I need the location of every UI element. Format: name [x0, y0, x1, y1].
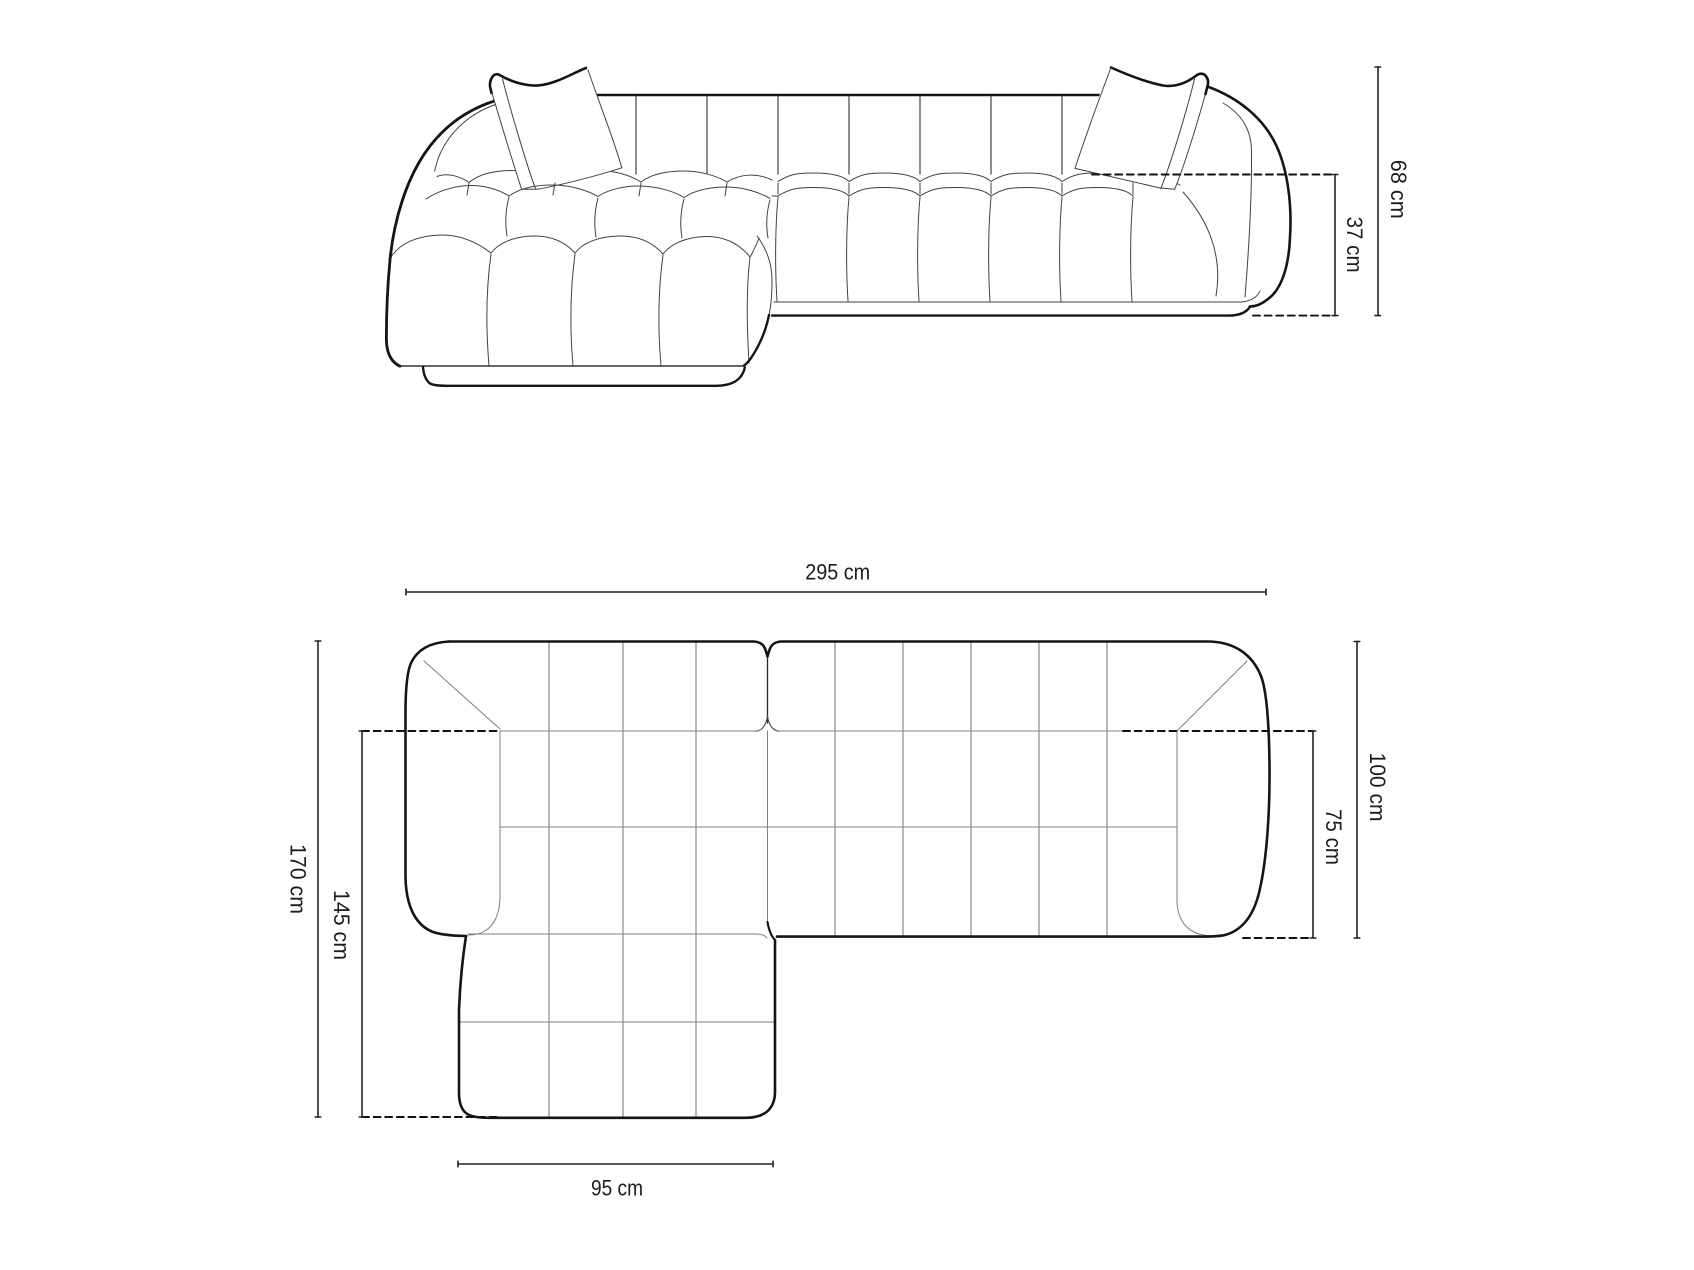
svg-text:145 cm: 145 cm [329, 890, 354, 960]
svg-text:170 cm: 170 cm [286, 844, 311, 914]
svg-text:95 cm: 95 cm [591, 1176, 643, 1201]
svg-text:75 cm: 75 cm [1321, 809, 1346, 865]
svg-text:295 cm: 295 cm [805, 560, 870, 585]
svg-text:100 cm: 100 cm [1365, 753, 1390, 822]
svg-text:37 cm: 37 cm [1342, 217, 1367, 273]
svg-text:68 cm: 68 cm [1386, 160, 1411, 219]
